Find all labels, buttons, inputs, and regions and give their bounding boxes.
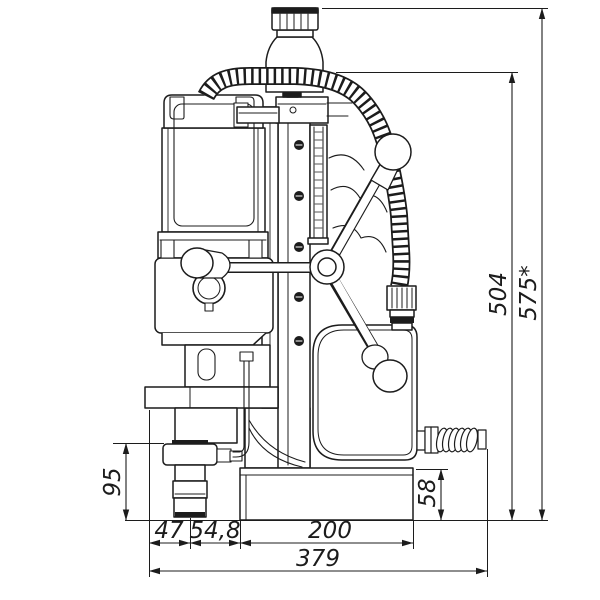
- dimension-base-height: 58: [415, 469, 444, 521]
- dim-label-base-length: 200: [308, 518, 352, 544]
- gear-rack: [308, 125, 328, 244]
- cable-coil: [435, 427, 480, 453]
- arbor-ring: [173, 481, 207, 498]
- dimension-machine-height: 504: [486, 72, 515, 521]
- electrical-box: [313, 325, 417, 460]
- motor-mount-strap: [234, 103, 279, 127]
- handle-knob-upper: [371, 134, 411, 190]
- drill-motor: [155, 95, 273, 387]
- spindle-housing: [175, 408, 237, 443]
- technical-drawing-page: 575*50458954754,8200379: [0, 0, 600, 600]
- drawing-canvas: 575*50458954754,8200379: [0, 0, 600, 600]
- dimension-arbor-length: 95: [100, 443, 129, 521]
- column-cap: [276, 97, 352, 123]
- cable-gland: [417, 431, 425, 450]
- column-body: [278, 120, 310, 468]
- arbor-shank: [175, 465, 205, 481]
- dim-label-arbor-length: 95: [100, 467, 126, 496]
- motor-body: [162, 128, 265, 232]
- dimension-bracket-to-axis: 47: [149, 518, 190, 546]
- dim-label-axis-to-base-front: 54,8: [189, 518, 240, 544]
- dim-label-machine-height: 504: [486, 272, 512, 316]
- slide-bracket-plate: [145, 387, 278, 408]
- dim-label-overall-height-max: 575*: [516, 265, 542, 320]
- cable-end: [478, 430, 486, 449]
- arbor-collar: [163, 444, 217, 465]
- magnetic-base: [240, 468, 413, 520]
- dim-label-base-height: 58: [415, 478, 441, 507]
- hose-connector: [387, 286, 416, 330]
- dim-label-overall-depth: 379: [296, 546, 340, 572]
- dimension-axis-to-base-front: 54,8: [189, 518, 240, 546]
- dimension-base-length: 200: [240, 518, 413, 546]
- coolant-inlet-nub: [217, 449, 231, 462]
- power-cable: [417, 427, 486, 453]
- dimension-overall-depth: 379: [149, 546, 487, 574]
- gearbox-bolt-right: [249, 240, 262, 258]
- dim-label-bracket-to-axis: 47: [154, 518, 184, 544]
- dimension-overall-height-max: 575*: [516, 8, 545, 521]
- gearbox-bolt-left: [161, 240, 174, 258]
